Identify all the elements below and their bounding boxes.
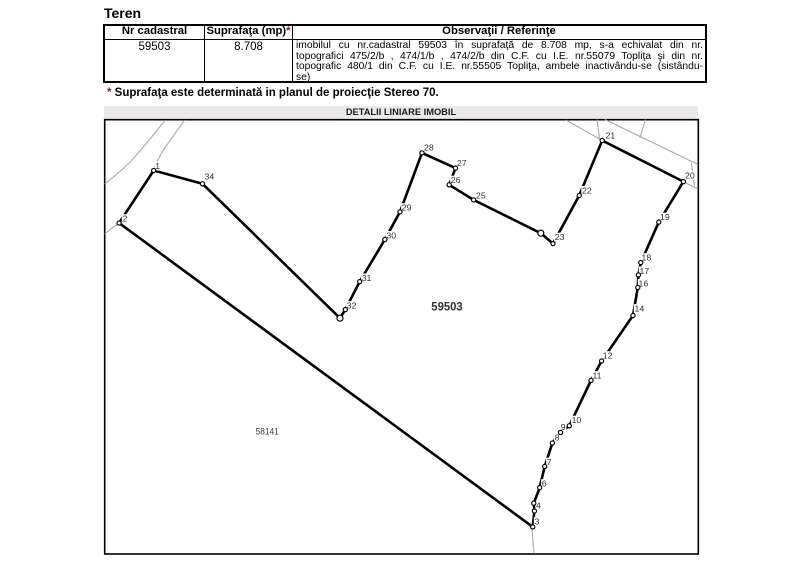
svg-text:21: 21 <box>606 131 616 141</box>
svg-text:59503: 59503 <box>431 300 463 313</box>
svg-text:29: 29 <box>402 203 412 213</box>
svg-text:19: 19 <box>660 212 670 222</box>
svg-text:23: 23 <box>555 232 565 242</box>
svg-text:14: 14 <box>635 304 645 314</box>
svg-text:28: 28 <box>424 143 434 153</box>
svg-text:22: 22 <box>582 185 592 195</box>
svg-text:4: 4 <box>536 501 541 511</box>
svg-text:2: 2 <box>123 214 128 224</box>
svg-text:34: 34 <box>205 172 215 182</box>
svg-text:3: 3 <box>535 517 540 527</box>
svg-text:30: 30 <box>386 230 396 240</box>
svg-text:12: 12 <box>603 351 613 361</box>
svg-text:25: 25 <box>476 191 486 201</box>
svg-text:58141: 58141 <box>256 427 279 437</box>
svg-text:31: 31 <box>362 273 372 283</box>
svg-text:27: 27 <box>457 158 467 168</box>
svg-text:6: 6 <box>542 479 547 489</box>
svg-text:20: 20 <box>685 171 695 181</box>
svg-text:10: 10 <box>572 415 582 425</box>
svg-text:26: 26 <box>451 175 461 185</box>
svg-text:18: 18 <box>642 253 652 263</box>
svg-text:32: 32 <box>347 301 357 311</box>
svg-text:11: 11 <box>593 371 602 381</box>
svg-text:7: 7 <box>547 457 552 467</box>
